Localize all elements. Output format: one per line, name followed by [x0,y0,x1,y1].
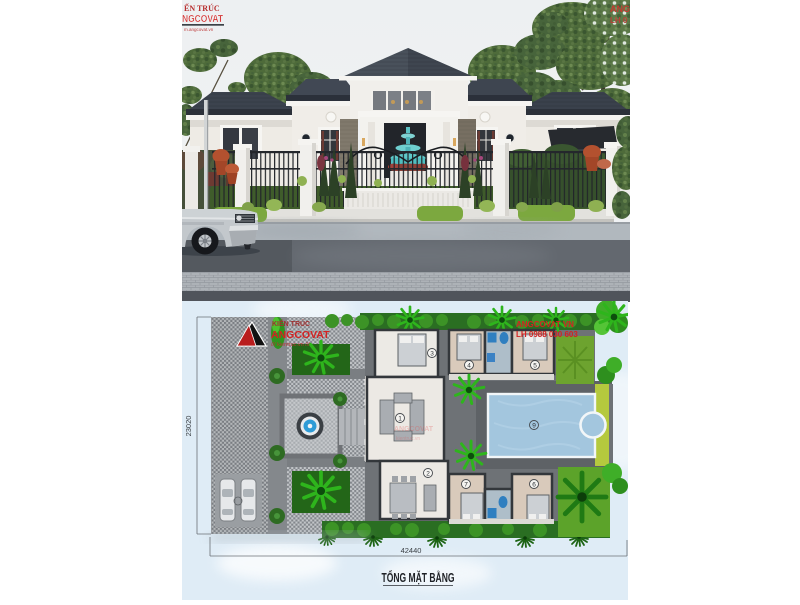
svg-text:ẾN TRÚC: ẾN TRÚC [184,3,220,13]
svg-text:23020: 23020 [184,416,193,437]
svg-text:ANGCOVAT: ANGCOVAT [271,329,330,341]
svg-text:TỔNG MẶT BẰNG: TỔNG MẶT BẰNG [382,570,455,585]
svg-text:1: 1 [398,416,402,423]
svg-text:NGCOVAT: NGCOVAT [182,13,223,25]
svg-text:2: 2 [426,471,430,478]
svg-text:LH 0: LH 0 [610,16,628,25]
svg-text:m.angcovat.vn: m.angcovat.vn [184,27,214,32]
svg-text:9: 9 [532,423,536,430]
svg-text:/// kientruc.vn ///: /// kientruc.vn /// [271,342,310,348]
svg-text:ANG: ANG [610,4,630,14]
svg-text:3: 3 [430,351,434,358]
svg-text:ANGCOVAT: ANGCOVAT [394,426,434,433]
svg-text:42440: 42440 [401,546,422,555]
svg-text:kientruc.vn: kientruc.vn [396,436,420,442]
svg-text:6: 6 [532,482,536,489]
svg-text:4: 4 [467,363,471,370]
svg-text:ANGCOVAT VN: ANGCOVAT VN [516,320,574,329]
svg-text:5: 5 [533,363,537,370]
svg-text:LH 0988 030 603: LH 0988 030 603 [516,330,578,339]
svg-text:7: 7 [464,482,468,489]
